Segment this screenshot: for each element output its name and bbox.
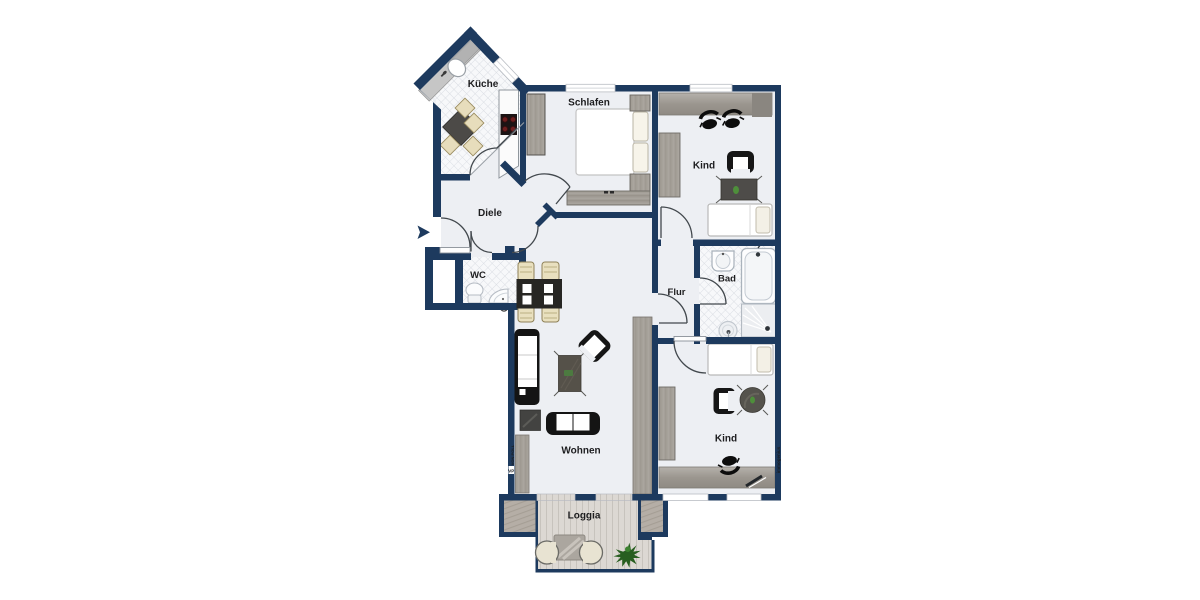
svg-text:WC: WC (470, 270, 486, 281)
svg-text:Bad: Bad (718, 274, 736, 285)
svg-text:Kind: Kind (693, 161, 715, 172)
svg-text:Flur: Flur (668, 287, 686, 298)
svg-text:Küche: Küche (468, 79, 499, 90)
svg-text:Wohnen: Wohnen (561, 446, 600, 457)
svg-text:Schlafen: Schlafen (568, 98, 610, 109)
svg-text:VP: VP (508, 469, 514, 474)
svg-text:Kind: Kind (715, 434, 737, 445)
svg-text:immogenius: immogenius (776, 446, 781, 473)
svg-text:Diele: Diele (478, 208, 502, 219)
svg-text:VON POLL: VON POLL (510, 444, 515, 465)
svg-text:Loggia: Loggia (568, 511, 601, 522)
